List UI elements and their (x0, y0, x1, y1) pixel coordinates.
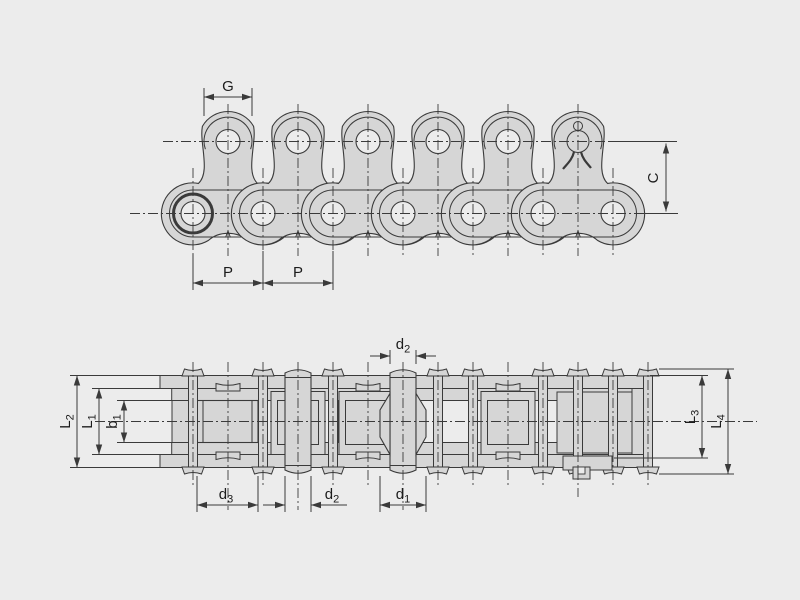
drawing-canvas: G P P C L2 L1 b1 L3 L4 d2 d3 d2 d1 (0, 0, 800, 600)
plan-view: L2 L1 b1 L3 L4 d2 d3 d2 d1 (57, 336, 757, 512)
dim-label-C: C (645, 172, 662, 183)
chain-engineering-drawing: G P P C L2 L1 b1 L3 L4 d2 d3 d2 d1 (0, 0, 800, 600)
dim-label-P-right: P (293, 264, 303, 281)
side-elevation-view: G P P C (130, 78, 678, 290)
dim-label-L1: L1 (79, 414, 99, 428)
dim-label-L3: L3 (682, 410, 702, 424)
cotter-pin-slot (578, 467, 585, 474)
dim-label-L4: L4 (708, 414, 728, 428)
dim-label-d2-bottom: d2 (325, 486, 339, 506)
dim-label-L2: L2 (57, 414, 77, 428)
dim-label-d2-top: d2 (396, 336, 410, 356)
dim-label-b1: b1 (104, 414, 124, 428)
dim-label-d1: d1 (396, 486, 410, 506)
dim-label-P-left: P (223, 264, 233, 281)
dim-label-G: G (222, 78, 234, 95)
connecting-link-body (557, 392, 632, 453)
dim-label-d3: d3 (219, 486, 233, 506)
